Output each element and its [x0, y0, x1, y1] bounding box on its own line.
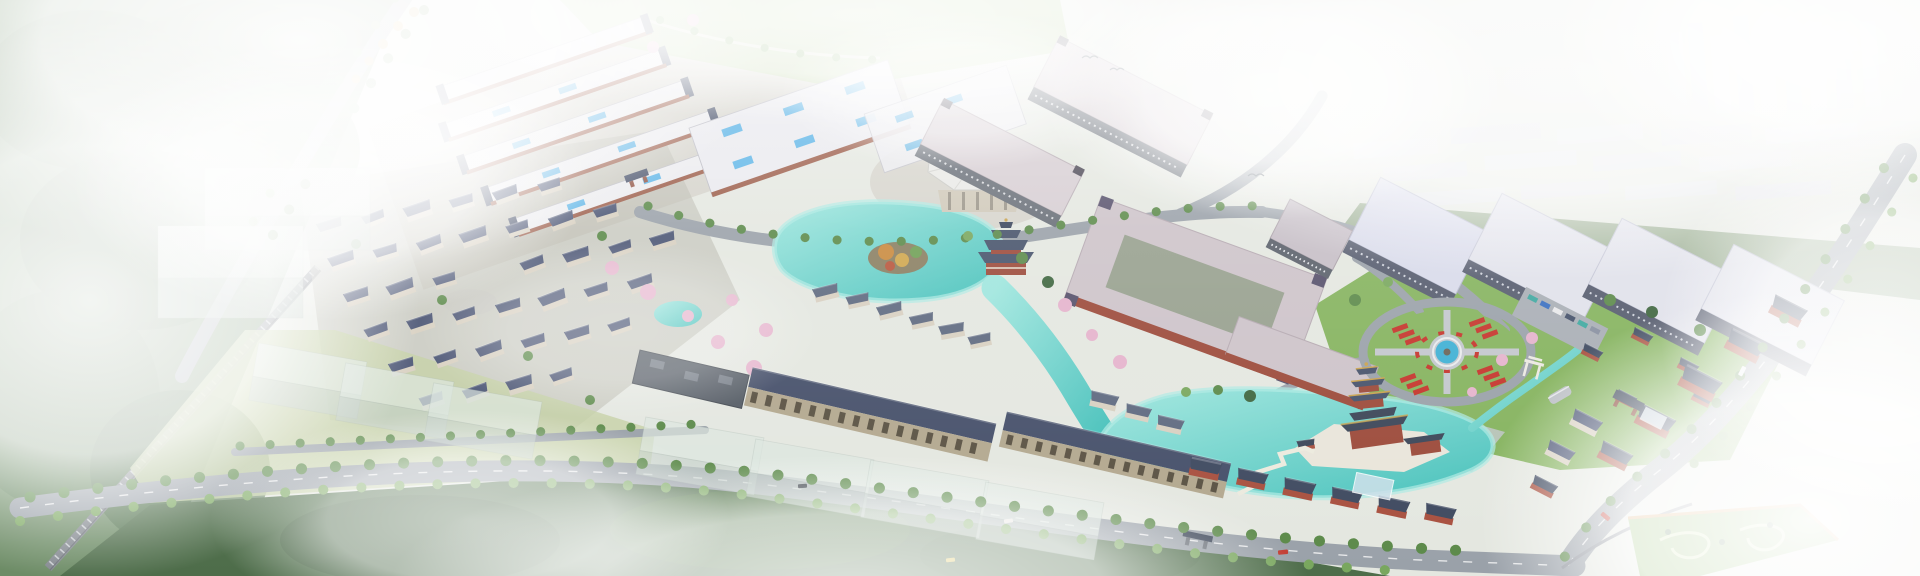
aerial-rendering-canvas: [0, 0, 1920, 576]
fog-banks: [0, 0, 1920, 576]
top-haze-wash: [0, 0, 1920, 576]
scene-svg: [0, 0, 1920, 576]
